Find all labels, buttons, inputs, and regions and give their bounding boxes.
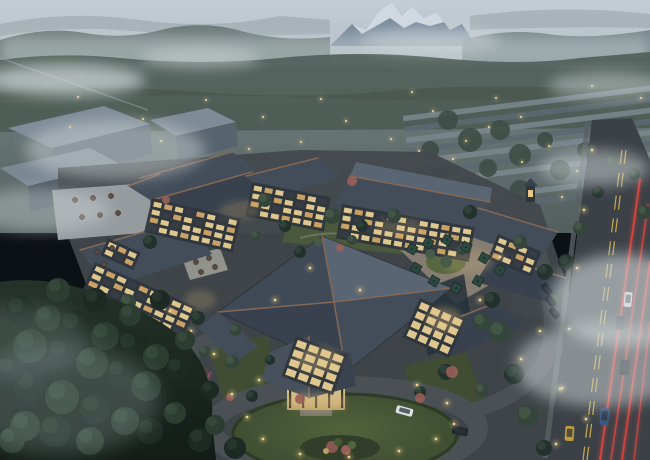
forest-tree-highlight xyxy=(190,430,202,442)
rendering-canvas xyxy=(0,0,650,460)
forest-tree-highlight xyxy=(152,292,162,302)
forest-tree-highlight xyxy=(48,280,60,292)
fog-patch xyxy=(140,48,260,68)
fog-patch xyxy=(540,150,650,186)
forest-tree-highlight xyxy=(121,306,132,317)
forest-tree-highlight xyxy=(177,332,187,342)
forest-tree-highlight xyxy=(203,382,212,391)
forest-tree-highlight xyxy=(168,359,180,371)
forest-tree-highlight xyxy=(85,290,97,302)
fog-patch xyxy=(25,120,205,180)
forest-tree-highlight xyxy=(94,324,108,338)
forest-tree-highlight xyxy=(226,439,237,450)
fog-patch xyxy=(360,28,500,52)
forest-tree-highlight xyxy=(146,346,159,359)
resort-aerial-scene xyxy=(0,0,650,460)
forest-tree-highlight xyxy=(207,417,217,427)
forest-tree-highlight xyxy=(166,404,177,415)
forest-tree-highlight xyxy=(120,333,135,348)
